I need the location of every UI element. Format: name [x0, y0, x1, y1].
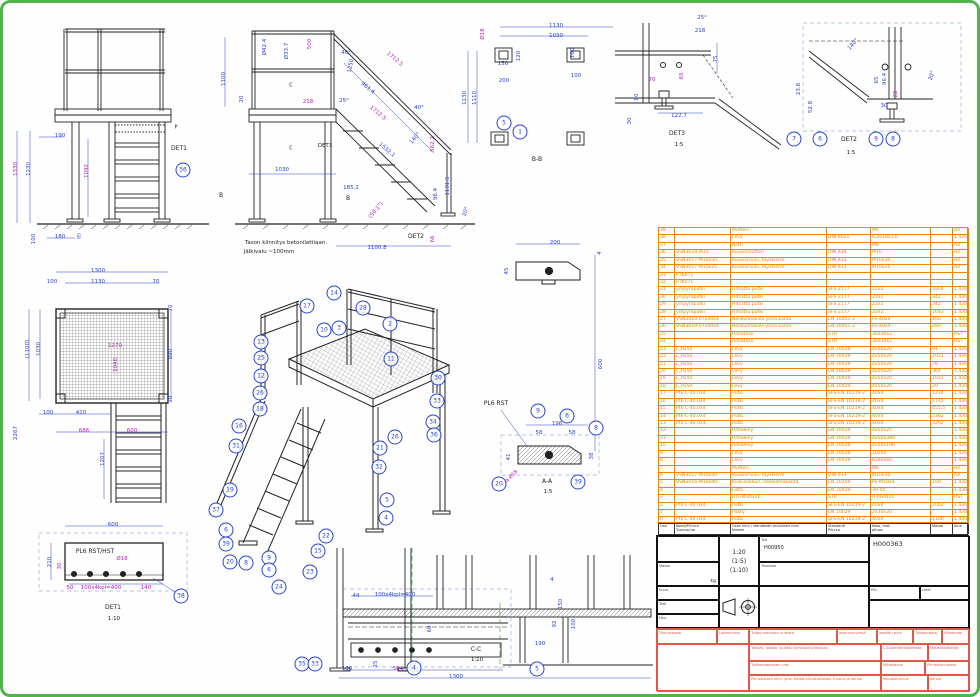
bom-cell: EN 10051-2: [827, 324, 871, 331]
drawing-title-cell: Piirustuksen nimi, yms. tiedot piirustuk…: [749, 675, 881, 692]
dim-label: 30: [58, 563, 64, 570]
bom-cell: [931, 451, 953, 458]
part-balloon-20: 20: [492, 477, 507, 492]
dim-label: 41: [507, 454, 513, 461]
dim-label: 120: [517, 51, 523, 62]
bom-cell: [931, 458, 953, 465]
bom-cell: Ptk-C-40.0x4: [675, 503, 731, 510]
bom-row: 25RitilätasoSTR30x30x2RST: [659, 332, 969, 339]
sign-row-hyv: Hyv.: [657, 614, 719, 629]
bom-cell: EN 10029: [827, 443, 871, 450]
part-balloon-17: 17: [300, 299, 315, 314]
bom-cell: EN 10029: [827, 436, 871, 443]
dim-label: Ø33.7: [285, 43, 291, 60]
bom-cell: VSN3015-M10x40: [675, 480, 731, 487]
part-balloon-5: 5: [380, 493, 395, 508]
revision-top-cell: Työkohdetta: [913, 629, 942, 644]
dim-label: 180: [55, 235, 66, 241]
bom-cell: RTL-W30x20: [731, 495, 827, 502]
bom-cell: 1.4301: [953, 354, 969, 361]
dim-label: (1100): [26, 340, 32, 358]
view-label: 1:5: [675, 143, 684, 149]
bom-cell: 1.4301: [953, 421, 969, 428]
bom-cell: 364: [931, 369, 953, 376]
bom-cell: Putki: [731, 414, 827, 421]
bom-cell: SFS-EN 10219-2: [827, 399, 871, 406]
part-balloon-6: 6: [262, 563, 277, 578]
bom-cell: [675, 510, 731, 517]
bom-cell: 40x4: [871, 414, 931, 421]
dim-label: 38: [590, 453, 596, 460]
dim-label: 30: [881, 104, 888, 110]
bom-cell: 1.4301: [953, 443, 969, 450]
bom-cell: [731, 280, 827, 287]
bom-header-cell: Osan nimi / standardin mukainen nimi Nim…: [731, 524, 827, 534]
part-balloon-26: 26: [388, 430, 403, 445]
bom-cell: 40x4: [871, 503, 931, 510]
bom-header-cell: Koodi/Piir.nro Tunnus/nro: [675, 524, 731, 534]
bom-cell: EN 10259: [827, 480, 871, 487]
bom-cell: STR: [827, 339, 871, 346]
bom-cell: L_Pu50: [675, 376, 731, 383]
bom-cell: 1.4301: [953, 480, 969, 487]
dim-label: 100x4kpl=400: [81, 586, 122, 592]
dim-label: 52.8: [809, 101, 815, 113]
bom-cell: 22x2: [871, 287, 931, 294]
bom-cell: 4x50x20: [871, 384, 931, 391]
dim-label: 4: [550, 578, 554, 584]
bom-cell: 22x2: [871, 302, 931, 309]
bom-cell: [931, 265, 953, 272]
title-block: Massa kg Suun. Tark. Hyv. 1:20 (1:5) (1:…: [656, 535, 969, 628]
part-balloon-23: 23: [303, 565, 318, 580]
bom-cell: [827, 228, 871, 235]
dim-label: 1130: [463, 91, 469, 105]
bom-row: 13Ptk-C-40.0x4PutkiSFS-EN 10219-240x4326…: [659, 421, 969, 428]
bom-row: 22L_Pu50LevyEN 100294x50x2010211.4301: [659, 354, 969, 361]
view-label: DET3: [669, 131, 685, 137]
bom-cell: 1.4301: [953, 302, 969, 309]
bom-row: 30ympyräputkiHitsattu putkiSFS 217722x23…: [659, 295, 969, 302]
bom-cell: Levy: [731, 369, 827, 376]
part-balloon-8: 8: [239, 556, 254, 571]
bom-row: 3RTL-W30x20STRH30xW20RST: [659, 495, 969, 502]
bom-cell: 25: [659, 332, 675, 339]
bom-cell: 1.4301: [953, 310, 969, 317]
drawing-number: H000363: [870, 537, 969, 551]
bom-cell: 22x2: [871, 310, 931, 317]
bom-cell: Ptk-C-40.0x4: [675, 399, 731, 406]
bom-cell: Putki: [731, 503, 827, 510]
part-balloon-7: 7: [787, 132, 802, 147]
bom-cell: ympyräputki: [675, 287, 731, 294]
part-balloon-26: 26: [253, 386, 268, 401]
bom-cell: 22x2: [871, 295, 931, 302]
bom-cell: A4: [953, 250, 969, 257]
bom-header-cell: Aine: [953, 524, 969, 534]
dim-label: 92: [553, 621, 559, 628]
bom-cell: 19: [659, 376, 675, 383]
version-cell: Versio: [928, 675, 970, 692]
bom-cell: 1.4301: [953, 295, 969, 302]
bom-cell: [827, 243, 871, 250]
bom-cell: 1.4301: [953, 369, 969, 376]
bom-cell: [731, 273, 827, 280]
dim-label: 100: [571, 74, 582, 80]
bom-cell: Putki: [731, 406, 827, 413]
dim-label: 1030: [275, 168, 289, 174]
work-number-cell: Työ H00950: [759, 536, 869, 562]
dim-label: 40°: [414, 106, 424, 112]
view-label: B-B: [532, 157, 542, 163]
bom-cell: EN 10029: [827, 488, 871, 495]
bom-cell: Levy: [731, 235, 827, 242]
bom-cell: 30-50: [871, 488, 931, 495]
bom-cell: [675, 243, 731, 250]
bom-cell: [931, 495, 953, 502]
bom-cell: A4: [953, 258, 969, 265]
view-label: PL6 RST: [484, 401, 508, 407]
view-label: 1:5: [847, 151, 856, 157]
dim-label: Ø42.4: [263, 39, 269, 56]
bom-cell: [931, 473, 953, 480]
bom-cell: Lista: [731, 488, 827, 495]
dim-label: 500: [308, 39, 314, 50]
bom-cell: DIN 933: [827, 265, 871, 272]
bom-row: 7MutteriM6A4: [659, 466, 969, 473]
dim-label: 22: [894, 91, 900, 98]
bom-cell: EN 10029: [827, 428, 871, 435]
bom-header-cell: Koko, mat. pituus: [871, 524, 931, 534]
part-balloon-20: 20: [223, 555, 238, 570]
bom-cell: 26: [659, 324, 675, 331]
bom-row: 11RitilälevyEN 100294x50x3801.4301: [659, 436, 969, 443]
revision-top-cell: Tunnuskoodi: [657, 629, 717, 644]
dim-label: 190: [535, 642, 546, 648]
part-balloon-5: 5: [497, 116, 512, 131]
bom-cell: Kuusioruuvi, täyskierre: [731, 265, 827, 272]
dim-label: 420: [76, 411, 87, 417]
bom-cell: [931, 510, 953, 517]
bom-cell: [675, 332, 731, 339]
dim-label: 1130: [91, 280, 105, 286]
bom-cell: 4x50x20: [871, 347, 931, 354]
dim-label: 1030: [37, 342, 43, 356]
part-balloon-15: 15: [311, 544, 326, 559]
bom-header-cell: Osa: [659, 524, 675, 534]
scale-main: 1:20: [732, 549, 745, 556]
bom-cell: 1: [659, 510, 675, 517]
bom-cell: 1.4301: [953, 488, 969, 495]
bom-cell: 1.4301: [953, 414, 969, 421]
dim-label: 196: [552, 422, 563, 428]
title-block-empty-cell2: [869, 600, 970, 629]
bom-cell: SFS 2177: [827, 295, 871, 302]
bom-cell: A4: [953, 473, 969, 480]
bom-cell: L_Pu50: [675, 369, 731, 376]
bom-cell: Levy: [731, 376, 827, 383]
dim-label: 150: [498, 62, 509, 68]
dim-label: 25°: [339, 99, 349, 105]
dim-label: 1040: [114, 358, 120, 372]
dim-label: 100: [571, 48, 577, 59]
bom-row: 17Ptk-C-40.0x4PutkiSFS-EN 10219-240x4123…: [659, 391, 969, 398]
dim-label: 96.4: [434, 188, 440, 200]
bom-cell: M6: [871, 466, 931, 473]
bom-cell: 1.4301: [953, 399, 969, 406]
dim-label: 600: [108, 523, 119, 529]
bom-cell: 10: [659, 443, 675, 450]
bom-row: 31ympyräputkiHitsattu putkiSFS 217722x21…: [659, 287, 969, 294]
section-cc: [330, 548, 653, 673]
revision-empty-cell: [657, 644, 749, 692]
bom-cell: [931, 428, 953, 435]
bom-cell: H30xW20: [871, 495, 931, 502]
revision-top-cell: Laitetunnus: [717, 629, 749, 644]
dim-label: 96.4: [883, 73, 889, 85]
part-balloon-16: 16: [232, 419, 247, 434]
bom-row: 32PTK071: [659, 280, 969, 287]
view-label: C: [289, 146, 293, 151]
part-balloon-6: 6: [560, 409, 575, 424]
scale-cell: 1:20 (1:5) (1:10): [719, 536, 759, 586]
bom-cell: [675, 488, 731, 495]
dim-label: Ø18: [481, 28, 487, 39]
bom-cell: 36: [659, 250, 675, 257]
bom-cell: VSN3017-M10x30: [675, 473, 731, 480]
bom-cell: [931, 250, 953, 257]
bom-cell: 1.4301: [953, 287, 969, 294]
bom-cell: Kiila-ankkuri, nelikulmakanta: [731, 480, 827, 487]
bom-cell: Kuusioruuvi, täyskierre: [731, 473, 827, 480]
bom-cell: VSN3017-M10x25: [675, 265, 731, 272]
bom-cell: 2: [659, 503, 675, 510]
bom-cell: 6,4x18x1,6: [871, 235, 931, 242]
bom-cell: ympyräputki: [675, 302, 731, 309]
bom-cell: EN 10029: [827, 362, 871, 369]
bom-cell: 35: [659, 258, 675, 265]
dim-label: 890: [169, 349, 175, 360]
scale-alt1: (1:5): [732, 558, 746, 565]
bom-cell: 1745: [931, 399, 953, 406]
bom-cell: [931, 228, 953, 235]
view-label: P: [174, 125, 177, 130]
revision-id-cell: Muutostunnus: [881, 675, 928, 692]
bom-cell: DIN 933: [827, 258, 871, 265]
dim-label: 4: [598, 251, 604, 255]
mass-cell: Massa kg: [657, 562, 719, 586]
bom-cell: Putki: [731, 399, 827, 406]
bom-row: 8LevyEN 100296x60x601.4301: [659, 458, 969, 465]
part-balloon-3: 3: [332, 321, 347, 336]
part-balloon-1: 1: [513, 125, 528, 140]
bom-cell: 94: [931, 347, 953, 354]
bom-cell: 342: [931, 302, 953, 309]
dim-label: 218: [303, 100, 314, 106]
dim-label: 200: [550, 241, 561, 247]
bom-cell: EN 10051-2: [827, 317, 871, 324]
dim-label: 100: [32, 234, 38, 245]
bom-row: 38LevyDIN 90216,4x18x1,61.4301: [659, 235, 969, 242]
part-balloon-33: 33: [430, 394, 445, 409]
bom-cell: SFS-EN 10219-2: [827, 503, 871, 510]
bom-cell: [675, 458, 731, 465]
dim-label: 122.7: [671, 114, 687, 120]
dim-label: 100: [47, 280, 58, 286]
bom-cell: L_Pu50: [675, 362, 731, 369]
dim-label: 1270: [108, 344, 122, 350]
dim-label: 70: [169, 396, 175, 403]
bom-row: 37NiittiM6A4: [659, 243, 969, 250]
bom-cell: 31: [659, 287, 675, 294]
dim-label: Ø18: [116, 557, 127, 563]
dim-label: 66: [431, 236, 437, 243]
bom-row: 18L_Pu50LevyEN 100294x50x20201.4301: [659, 384, 969, 391]
part-balloon-24: 24: [272, 580, 287, 595]
dim-label: 1300: [449, 675, 463, 681]
bom-cell: 32: [659, 280, 675, 287]
bom-header-cell: Standardi Piir.nro: [827, 524, 871, 534]
bom-cell: [675, 443, 731, 450]
bom-cell: M6: [871, 243, 931, 250]
bom-cell: 4x50x20: [871, 369, 931, 376]
bom-cell: SFS 2177: [827, 310, 871, 317]
bom-cell: 21: [659, 362, 675, 369]
bom-cell: 40x4: [871, 391, 931, 398]
bom-cell: STR: [827, 495, 871, 502]
dim-label: 150: [559, 599, 565, 610]
bom-cell: Pv-40x4: [871, 317, 931, 324]
view-label: DET1: [105, 605, 121, 611]
bom-cell: 24: [659, 339, 675, 346]
bom-cell: [827, 273, 871, 280]
part-balloon-2: 2: [383, 317, 398, 332]
view-label: DET2: [841, 137, 857, 143]
bom-cell: 78: [931, 362, 953, 369]
part-balloon-12: 12: [254, 369, 269, 384]
bom-cell: 18: [659, 384, 675, 391]
dim-label: 70: [649, 78, 656, 84]
bom-cell: 40x4: [871, 399, 931, 406]
bom-cell: RST: [953, 339, 969, 346]
bom-row: 9LevyEN 1002910x601.4301: [659, 451, 969, 458]
bom-row: 4ListaEN 1002930-501.4301: [659, 488, 969, 495]
dim-label: 185.2: [343, 186, 359, 192]
scale-field-cell: Mittakaava: [881, 661, 925, 675]
dim-label: 210: [48, 557, 54, 568]
dim-label: 100: [342, 667, 353, 673]
dim-label: 40°: [341, 51, 351, 57]
bom-row: 35VSN3017-M10x30Kuusioruuvi, täyskierreD…: [659, 258, 969, 265]
bom-cell: Ritilälevy: [731, 443, 827, 450]
bom-cell: 12: [659, 428, 675, 435]
bom-cell: Levy: [731, 354, 827, 361]
bom-cell: 40x4: [871, 421, 931, 428]
bom-cell: 4x50x190: [871, 443, 931, 450]
bom-cell: L_Pu50: [675, 354, 731, 361]
file-label: Tiedosto: [761, 564, 776, 568]
bom-cell: 15: [659, 406, 675, 413]
bom-cell: 1.4301: [953, 324, 969, 331]
part-balloon-13: 13: [254, 335, 269, 350]
bom-cell: 1.4301: [953, 503, 969, 510]
bom-cell: Putki: [731, 421, 827, 428]
dim-label: 2267: [14, 426, 20, 440]
bom-cell: 30x30x2: [871, 339, 931, 346]
sign-row-suun: Suun.: [657, 586, 719, 600]
detail-det3: [615, 23, 781, 149]
bom-cell: 4x50x20: [871, 376, 931, 383]
bom-cell: Hitsattu putki: [731, 310, 827, 317]
bom-cell: 7: [659, 466, 675, 473]
bom-cell: 1.4301: [953, 362, 969, 369]
bom-cell: VSN3017-M10x30: [675, 258, 731, 265]
bom-cell: 8: [659, 458, 675, 465]
bom-cell: A4: [953, 466, 969, 473]
part-balloon-36: 36: [176, 163, 191, 178]
bom-cell: Levy: [731, 458, 827, 465]
part-balloon-31: 31: [229, 439, 244, 454]
bom-cell: Levy: [731, 384, 827, 391]
bom-cell: 1.4301: [953, 347, 969, 354]
drawing-no-field-cell: Piirustusnumero: [925, 661, 970, 675]
view-label: B: [346, 196, 350, 202]
dim-label: 1230: [27, 162, 33, 176]
bom-cell: 39: [659, 228, 675, 235]
bom-cell: Ritilälevy: [731, 436, 827, 443]
bom-cell: EN 10029: [827, 384, 871, 391]
bom-cell: Pääty: [731, 510, 827, 517]
part-balloon-6: 6: [813, 132, 828, 147]
bom-cell: ympyräputki: [675, 310, 731, 317]
piir-cell: Piir.: [869, 586, 920, 600]
bom-cell: Pv-40x4: [871, 324, 931, 331]
bom-cell: 1.4301: [953, 510, 969, 517]
bom-table-header: OsaKoodi/Piir.nro Tunnus/nroOsan nimi / …: [658, 523, 968, 535]
part-balloon-32: 32: [372, 460, 387, 475]
bom-row: 10RitilälevyEN 100294x50x1901.4301: [659, 443, 969, 450]
dim-label: 1100: [222, 72, 228, 86]
bom-cell: Ptk-C-40.0x4: [675, 391, 731, 398]
part-balloon-21: 21: [373, 441, 388, 456]
bom-cell: A4: [953, 243, 969, 250]
revision-form: TunnuskoodiLaitetunnusTyöpiirustuksen nu…: [656, 628, 969, 691]
bom-cell: SFS 2177: [827, 302, 871, 309]
bom-row: 14Ptk-C-40.0x4PutkiSFS-EN 10219-240x4236…: [659, 414, 969, 421]
dim-label: 60: [428, 626, 434, 633]
bom-cell: 1.4301: [953, 428, 969, 435]
bom-cell: Ritilätaso: [731, 339, 827, 346]
bom-cell: 28: [659, 310, 675, 317]
bom-cell: 10x60: [871, 451, 931, 458]
dim-label: 600: [599, 359, 605, 370]
bom-cell: Pv-M10x4: [871, 480, 931, 487]
bom-cell: Niitti: [731, 243, 827, 250]
third-angle-projection-icon: [721, 596, 759, 618]
bom-cell: PTK071: [675, 280, 731, 287]
part-balloon-28: 28: [356, 301, 371, 316]
bom-cell: [931, 488, 953, 495]
cad-drawing-sheet: 13301230109219010018085DET1PB1100Ø42.4Ø3…: [0, 0, 980, 697]
bom-cell: 2x30x20: [871, 510, 931, 517]
part-balloon-39: 39: [219, 537, 234, 552]
drawing-number-cell: H000363: [869, 536, 970, 586]
bom-cell: [931, 466, 953, 473]
bom-row: 36VSN3024-M10KuusiomutteriDIN 934M10A4: [659, 250, 969, 257]
view-label: Tason kiinnitys betonilattiaan.: [245, 241, 327, 247]
bom-cell: [675, 228, 731, 235]
bom-cell: DIN 933: [827, 473, 871, 480]
